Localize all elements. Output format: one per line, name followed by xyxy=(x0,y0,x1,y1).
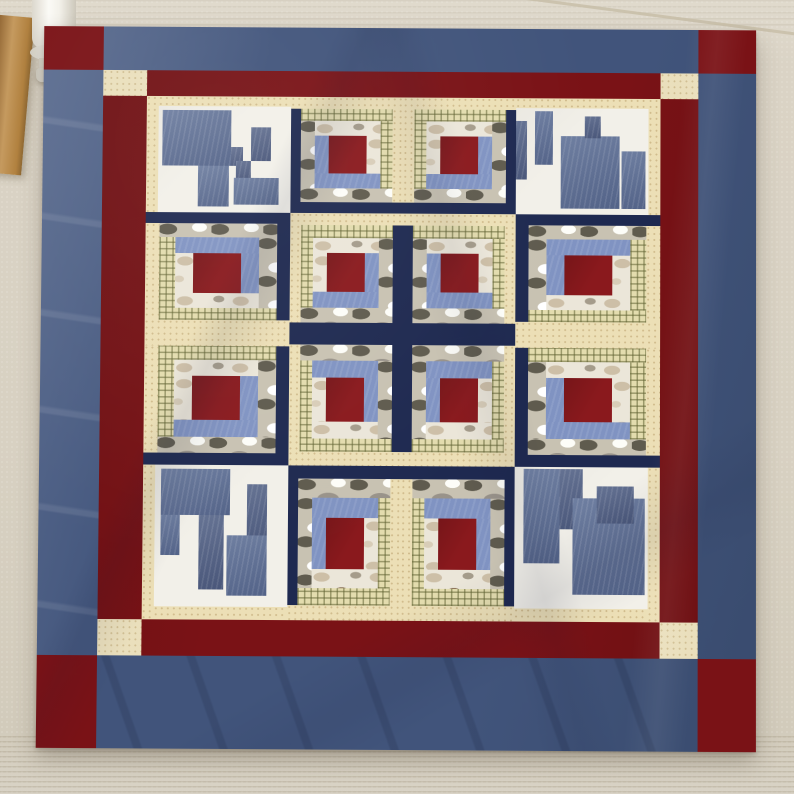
logcabin-strip-cream xyxy=(403,214,516,227)
carpet-texture-top xyxy=(0,0,794,26)
logcabin-strip-lblue xyxy=(175,237,260,253)
inner-cornerstone-cream-bl xyxy=(97,619,142,656)
logcabin-strip-lblue xyxy=(424,498,490,519)
logcabin-strip-wcamo xyxy=(311,569,378,589)
logcabin-strip-camo xyxy=(529,225,646,240)
logcabin-strip-camo xyxy=(300,189,391,203)
logcabin-strip-gingham xyxy=(528,310,645,323)
logcabin-strip-wcamo xyxy=(546,361,631,378)
logcabin-strip-wcamo xyxy=(424,570,491,590)
logcabin-strip-cream xyxy=(288,345,300,452)
logcabin-strip-cream xyxy=(389,480,401,606)
logcabin-strip-cream xyxy=(504,346,516,453)
logcabin-strip-camo xyxy=(301,121,315,189)
logcabin-strip-gingham xyxy=(159,345,276,360)
quilt-block-r2c2-logcabin-br xyxy=(289,213,403,334)
logcabin-strip-lblue xyxy=(426,361,492,379)
logcabin-strip-wcamo xyxy=(424,518,438,569)
logcabin-strip-camo xyxy=(528,239,546,309)
logcabin-strip-lblue xyxy=(426,379,441,423)
logcabin-strip-gingham xyxy=(301,237,313,307)
quilt-block-r4c2-logcabin-tl xyxy=(287,465,402,621)
logcabin-center-red xyxy=(438,519,476,570)
logcabin-strip-navy xyxy=(515,225,528,322)
logcabin-strip-navy xyxy=(289,322,402,333)
logcabin-strip-camo xyxy=(158,436,276,453)
logcabin-strip-camo xyxy=(490,499,504,590)
logcabin-strip-cream xyxy=(645,348,660,455)
logcabin-strip-lblue xyxy=(426,253,441,293)
logcabin-strip-gingham xyxy=(412,498,424,589)
logcabin-strip-lblue xyxy=(314,135,329,173)
logcabin-strip-lblue xyxy=(240,253,259,293)
stair-denim-shape xyxy=(226,536,266,596)
logcabin-strip-wcamo xyxy=(313,238,379,253)
logcabin-strip-cream xyxy=(287,605,401,621)
stair-denim-shape xyxy=(535,111,554,164)
logcabin-strip-lblue xyxy=(311,518,326,569)
logcabin-strip-wcamo xyxy=(546,295,631,311)
quilt-block-r3c1-logcabin-br xyxy=(143,332,289,465)
logcabin-strip-lblue xyxy=(426,293,492,309)
stair-denim-shape xyxy=(251,128,271,161)
logcabin-strip-lblue xyxy=(314,173,380,188)
stair-white-field xyxy=(154,464,288,607)
logcabin-strip-camo xyxy=(528,439,645,456)
logcabin-strip-camo xyxy=(413,308,505,323)
logcabin-strip-gingham xyxy=(492,239,504,309)
stair-denim-shape xyxy=(516,121,527,179)
photo-scene xyxy=(0,0,794,794)
logcabin-strip-gingham xyxy=(528,347,645,362)
logcabin-strip-camo xyxy=(379,238,393,308)
logcabin-strip-camo xyxy=(378,361,392,438)
logcabin-strip-camo xyxy=(258,360,276,437)
stair-denim-shape xyxy=(236,160,251,177)
inner-cornerstone-cream-br xyxy=(660,622,698,659)
logcabin-strip-navy xyxy=(402,226,413,323)
logcabin-strip-gingham xyxy=(412,439,504,453)
stair-cream-strip xyxy=(647,467,660,622)
logcabin-strip-camo xyxy=(298,479,390,498)
quilt-block-r4c4-stair-br xyxy=(514,466,660,622)
logcabin-strip-camo xyxy=(414,189,505,203)
logcabin-strip-cream xyxy=(145,223,160,320)
logcabin-strip-navy xyxy=(403,203,516,214)
logcabin-strip-wcamo xyxy=(363,518,378,569)
logcabin-center-red xyxy=(440,136,477,175)
logcabin-strip-wcamo xyxy=(313,253,327,293)
logcabin-strip-navy xyxy=(392,225,403,322)
stair-denim-shape xyxy=(198,515,224,589)
logcabin-strip-lblue xyxy=(545,378,564,422)
stair-cream-strip xyxy=(648,99,660,215)
logcabin-strip-cream xyxy=(515,322,660,335)
quilt-block-r3c4-logcabin-bl xyxy=(515,334,660,467)
logcabin-strip-navy xyxy=(288,465,401,480)
logcabin-strip-gingham xyxy=(380,121,392,189)
logcabin-strip-gingham xyxy=(378,498,390,589)
logcabin-strip-gingham xyxy=(158,359,174,436)
stair-white-field xyxy=(516,108,648,215)
logcabin-strip-navy xyxy=(143,452,288,465)
logcabin-strip-wcamo xyxy=(612,378,630,422)
logcabin-strip-cream xyxy=(288,452,401,466)
logcabin-strip-camo xyxy=(297,498,311,589)
logcabin-strip-lblue xyxy=(363,378,378,422)
quilt-block-r1c3-logcabin-br xyxy=(403,97,516,214)
logcabin-strip-wcamo xyxy=(314,121,380,136)
logcabin-strip-navy xyxy=(391,345,402,452)
logcabin-strip-camo xyxy=(413,238,427,308)
logcabin-strip-navy xyxy=(289,333,402,346)
logcabin-strip-gingham xyxy=(300,438,392,452)
logcabin-center-red xyxy=(565,255,613,295)
quilt-block-r4c3-logcabin-tr xyxy=(401,466,515,622)
logcabin-strip-gingham xyxy=(301,225,393,238)
logcabin-strip-gingham xyxy=(159,237,175,307)
logcabin-strip-cream xyxy=(144,332,289,346)
logcabin-center-red xyxy=(326,378,364,422)
quilt-center-field xyxy=(142,96,661,622)
inner-cornerstone-cream-tl xyxy=(103,70,147,96)
outer-cornerstone-red-tr xyxy=(698,30,756,74)
logcabin-strip-wcamo xyxy=(478,379,492,423)
logcabin-strip-camo xyxy=(301,308,393,323)
logcabin-strip-wcamo xyxy=(427,238,493,253)
logcabin-strip-gingham xyxy=(301,108,392,121)
stair-denim-shape xyxy=(160,468,229,515)
logcabin-strip-navy xyxy=(506,110,517,204)
fabric-crease-left-border xyxy=(37,70,104,656)
logcabin-strip-lblue xyxy=(312,498,378,519)
logcabin-center-red xyxy=(441,253,478,293)
logcabin-center-red xyxy=(326,518,364,569)
logcabin-strip-cream xyxy=(143,345,159,452)
logcabin-strip-gingham xyxy=(300,361,312,438)
logcabin-strip-lblue xyxy=(546,240,631,256)
logcabin-strip-cream xyxy=(290,213,403,226)
stair-denim-shape xyxy=(198,165,229,206)
logcabin-center-red xyxy=(329,135,366,174)
stair-denim-shape xyxy=(622,151,646,209)
logcabin-strip-gingham xyxy=(413,226,505,239)
logcabin-strip-wcamo xyxy=(173,376,192,420)
quilt-block-r2c1-logcabin-tr xyxy=(145,212,291,333)
logcabin-strip-camo xyxy=(413,480,505,499)
logcabin-strip-lblue xyxy=(476,519,491,570)
logcabin-strip-cream xyxy=(646,226,661,323)
logcabin-strip-navy xyxy=(290,108,301,202)
logcabin-strip-cream xyxy=(289,225,301,322)
logcabin-center-red xyxy=(327,253,365,293)
logcabin-strip-navy xyxy=(402,334,515,347)
logcabin-strip-camo xyxy=(300,345,392,361)
logcabin-strip-navy xyxy=(276,224,290,321)
logcabin-strip-wcamo xyxy=(478,254,492,294)
logcabin-strip-navy xyxy=(402,323,515,334)
logcabin-strip-navy xyxy=(504,480,515,606)
quilt-block-r3c3-logcabin-tl xyxy=(402,334,516,467)
logcabin-strip-camo xyxy=(412,361,426,438)
logcabin-strip-lblue xyxy=(364,253,379,293)
stair-denim-shape xyxy=(233,177,278,205)
logcabin-strip-lblue xyxy=(478,136,493,174)
quilt-block-r4c1-stair-bl xyxy=(142,464,289,620)
quilt xyxy=(36,26,756,752)
logcabin-strip-lblue xyxy=(545,422,630,440)
logcabin-strip-wcamo xyxy=(174,293,259,309)
logcabin-strip-wcamo xyxy=(425,422,491,439)
logcabin-strip-navy xyxy=(515,454,660,467)
outer-cornerstone-red-br xyxy=(698,659,756,752)
logcabin-strip-wcamo xyxy=(174,359,259,376)
stair-cream-strip xyxy=(514,608,659,622)
logcabin-strip-gingham xyxy=(630,362,645,439)
logcabin-strip-cream xyxy=(401,480,413,606)
quilt-block-r1c2-logcabin-bl xyxy=(290,97,404,214)
logcabin-strip-cream xyxy=(404,97,517,109)
outer-cornerstone-red-bl xyxy=(36,655,97,748)
stair-denim-shape xyxy=(162,110,231,166)
logcabin-strip-cream xyxy=(403,109,415,203)
inner-cornerstone-cream-tr xyxy=(661,73,699,99)
logcabin-strip-cream xyxy=(515,334,660,348)
quilt-block-r3c2-logcabin-tr xyxy=(288,333,402,466)
logcabin-strip-lblue xyxy=(426,174,492,189)
logcabin-center-red xyxy=(440,379,478,423)
logcabin-strip-gingham xyxy=(630,240,645,310)
stair-denim-shape xyxy=(597,487,634,524)
logcabin-strip-navy xyxy=(402,345,413,452)
logcabin-strip-gingham xyxy=(159,307,276,320)
logcabin-strip-camo xyxy=(259,238,277,308)
logcabin-strip-lblue xyxy=(312,361,378,379)
fabric-crease-bottom-border xyxy=(96,655,698,752)
logcabin-strip-wcamo xyxy=(312,378,326,422)
stair-cream-strip xyxy=(142,606,287,620)
outer-cornerstone-red-tl xyxy=(44,26,104,70)
logcabin-strip-lblue xyxy=(313,292,379,308)
stair-cream-strip xyxy=(146,96,159,212)
logcabin-strip-lblue xyxy=(239,376,258,420)
logcabin-strip-gingham xyxy=(297,588,389,605)
logcabin-strip-camo xyxy=(528,361,546,438)
logcabin-strip-cream xyxy=(145,320,290,333)
logcabin-strip-gingham xyxy=(412,589,504,606)
stair-denim-shape xyxy=(524,469,560,563)
logcabin-strip-gingham xyxy=(415,109,506,122)
logcabin-strip-navy xyxy=(515,347,528,454)
logcabin-strip-camo xyxy=(412,345,504,361)
logcabin-strip-cream xyxy=(402,452,515,466)
logcabin-strip-lblue xyxy=(173,419,258,437)
quilt-block-r1c4-stair-tr xyxy=(516,98,661,215)
logcabin-center-red xyxy=(564,378,612,422)
quilt-block-r2c4-logcabin-tl xyxy=(515,214,660,335)
logcabin-center-red xyxy=(191,376,239,420)
logcabin-strip-navy xyxy=(275,346,289,453)
logcabin-strip-navy xyxy=(290,202,403,213)
quilt-block-r1c1-stair-tl xyxy=(146,96,291,213)
logcabin-strip-wcamo xyxy=(427,121,493,136)
logcabin-center-red xyxy=(193,253,241,293)
logcabin-strip-wcamo xyxy=(175,253,193,293)
logcabin-strip-navy xyxy=(146,212,291,224)
logcabin-strip-navy xyxy=(401,466,514,481)
logcabin-strip-wcamo xyxy=(426,136,440,174)
logcabin-strip-gingham xyxy=(492,362,504,439)
logcabin-strip-cream xyxy=(504,226,516,323)
logcabin-strip-gingham xyxy=(414,121,426,189)
stair-denim-shape xyxy=(585,117,601,138)
logcabin-strip-camo xyxy=(492,122,506,190)
stair-denim-shape xyxy=(160,515,180,555)
logcabin-strip-cream xyxy=(392,109,404,203)
logcabin-strip-cream xyxy=(291,97,404,109)
quilt-block-r2c3-logcabin-bl xyxy=(402,214,516,335)
logcabin-strip-wcamo xyxy=(366,136,380,174)
stair-white-field xyxy=(514,466,647,609)
stair-denim-shape xyxy=(561,136,619,209)
logcabin-strip-lblue xyxy=(546,255,565,295)
logcabin-strip-wcamo xyxy=(612,256,630,296)
logcabin-strip-wcamo xyxy=(312,421,378,438)
stair-white-field xyxy=(158,106,291,213)
logcabin-strip-camo xyxy=(160,223,277,238)
logcabin-strip-cream xyxy=(401,605,515,621)
